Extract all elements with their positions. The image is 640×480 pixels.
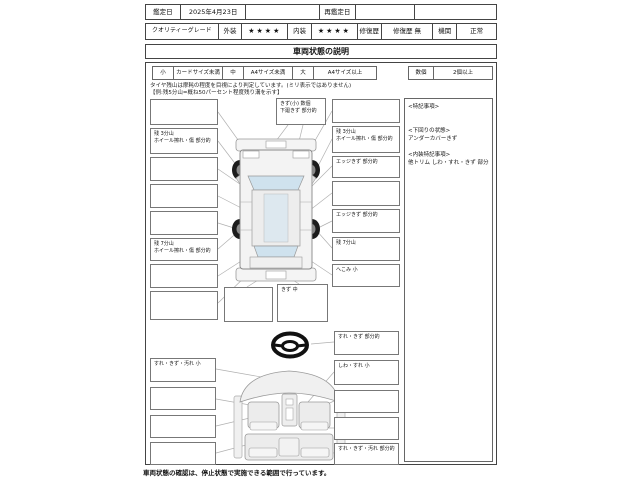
appraisal-date-value: 2025年4月23日 xyxy=(180,5,246,19)
damage-label-box xyxy=(332,181,400,206)
damage-label-box: エッジきず 部分的 xyxy=(332,156,400,178)
damage-label-box: すれ・きず・汚れ 部分的 xyxy=(334,443,399,465)
car-top-view-diagram xyxy=(228,136,328,288)
special-notes-title: <特記事項> xyxy=(408,103,489,111)
damage-label-box xyxy=(150,291,218,320)
count-value: 2個以上 xyxy=(433,66,493,80)
repair-history-label: 修復歴 xyxy=(357,24,381,39)
size-medium-value: A4サイズ未満 xyxy=(243,66,293,80)
tire-note-line1: タイヤ残山は摩耗の程度を目視により判定しています。(ミリ表示ではありません) xyxy=(150,83,450,90)
damage-label-box xyxy=(334,417,399,440)
damage-label-box xyxy=(150,184,218,208)
repair-history-value: 修復歴 無 xyxy=(381,24,433,39)
quality-grade-label: クオリティーグレード xyxy=(146,24,218,39)
damage-label-box: へこみ 小 xyxy=(332,264,400,287)
appraisal-date-row: 鑑定日 2025年4月23日 再鑑定日 xyxy=(145,4,497,20)
size-large-value: A4サイズ以上 xyxy=(313,66,377,80)
underbody-text: アンダーカバーきず xyxy=(408,135,489,143)
damage-label-box xyxy=(150,415,216,438)
exterior-label: 外装 xyxy=(218,24,242,39)
re-appraisal-date-value xyxy=(355,5,415,19)
interior-label: 内装 xyxy=(287,24,311,39)
count-key: 数個 xyxy=(408,66,434,80)
vehicle-condition-report: 鑑定日 2025年4月23日 再鑑定日 クオリティーグレード 外装 ★★★★ 内… xyxy=(0,0,640,480)
damage-label-box xyxy=(150,157,218,181)
special-notes-column: <特記事項> <下回りの状態> アンダーカバーきず <内装特記事項> 他トリム … xyxy=(404,98,493,462)
damage-label-box xyxy=(150,387,216,410)
engine-value: 正常 xyxy=(456,24,496,39)
damage-label-box xyxy=(334,390,399,413)
damage-label-box xyxy=(150,442,216,465)
interior-notes-heading: <内装特記事項> xyxy=(408,151,489,159)
damage-label-box: エッジきず 部分的 xyxy=(332,209,400,233)
car-interior-diagram xyxy=(232,366,347,464)
damage-label-box: すれ・きず・汚れ 小 xyxy=(150,358,216,382)
size-large-key: 大 xyxy=(292,66,314,80)
exterior-rating: ★★★★ xyxy=(241,24,287,39)
damage-label-box: きず 中 xyxy=(277,284,328,322)
interior-rating: ★★★★ xyxy=(311,24,357,39)
size-small-value: カードサイズ未満 xyxy=(173,66,223,80)
damage-label-box xyxy=(224,287,273,322)
damage-label-box: 残 7分山ホイール擦れ・傷 部分的 xyxy=(150,238,218,261)
footer-note: 車両状態の確認は、停止状態で実施できる範囲で行っています。 xyxy=(143,467,330,477)
tire-note: タイヤ残山は摩耗の程度を目視により判定しています。(ミリ表示ではありません) 【… xyxy=(150,83,450,97)
damage-label-box: 残 3分山ホイール擦れ・傷 部分的 xyxy=(150,128,218,154)
size-medium-key: 中 xyxy=(222,66,244,80)
count-legend: 数個 2個以上 xyxy=(408,66,493,80)
engine-label: 機関 xyxy=(432,24,456,39)
damage-label-box: すれ・きず 部分的 xyxy=(334,331,399,355)
damage-label-box xyxy=(150,264,218,288)
quality-grade-row: クオリティーグレード 外装 ★★★★ 内装 ★★★★ 修復歴 修復歴 無 機関 … xyxy=(145,23,497,40)
size-legend: 小 カードサイズ未満 中 A4サイズ未満 大 A4サイズ以上 xyxy=(152,66,377,80)
re-appraisal-empty-cell xyxy=(414,5,496,19)
damage-label-box: しわ・すれ 小 xyxy=(334,360,399,385)
tire-note-line2: 【例:残5分山=概ね50パーセント程度残り溝を示す】 xyxy=(150,90,450,97)
appraisal-empty-cell xyxy=(245,5,319,19)
underbody-heading: <下回りの状態> xyxy=(408,127,489,135)
re-appraisal-date-label: 再鑑定日 xyxy=(319,5,355,19)
appraisal-date-label: 鑑定日 xyxy=(146,5,180,19)
damage-label-box xyxy=(150,211,218,235)
steering-wheel-icon xyxy=(268,330,312,360)
damage-label-box: 残 7分山 xyxy=(332,237,400,261)
page-title: 車両状態の説明 xyxy=(145,44,497,59)
damage-label-box: きず(小) 数個下廻きず 部分的 xyxy=(276,98,326,125)
damage-label-box: 残 3分山ホイール擦れ・傷 部分的 xyxy=(332,126,400,153)
size-small-key: 小 xyxy=(152,66,174,80)
damage-label-box xyxy=(150,99,218,125)
interior-notes-text: 他トリム しわ・すれ・きず 部分的 xyxy=(408,159,489,167)
damage-label-box xyxy=(332,99,400,123)
